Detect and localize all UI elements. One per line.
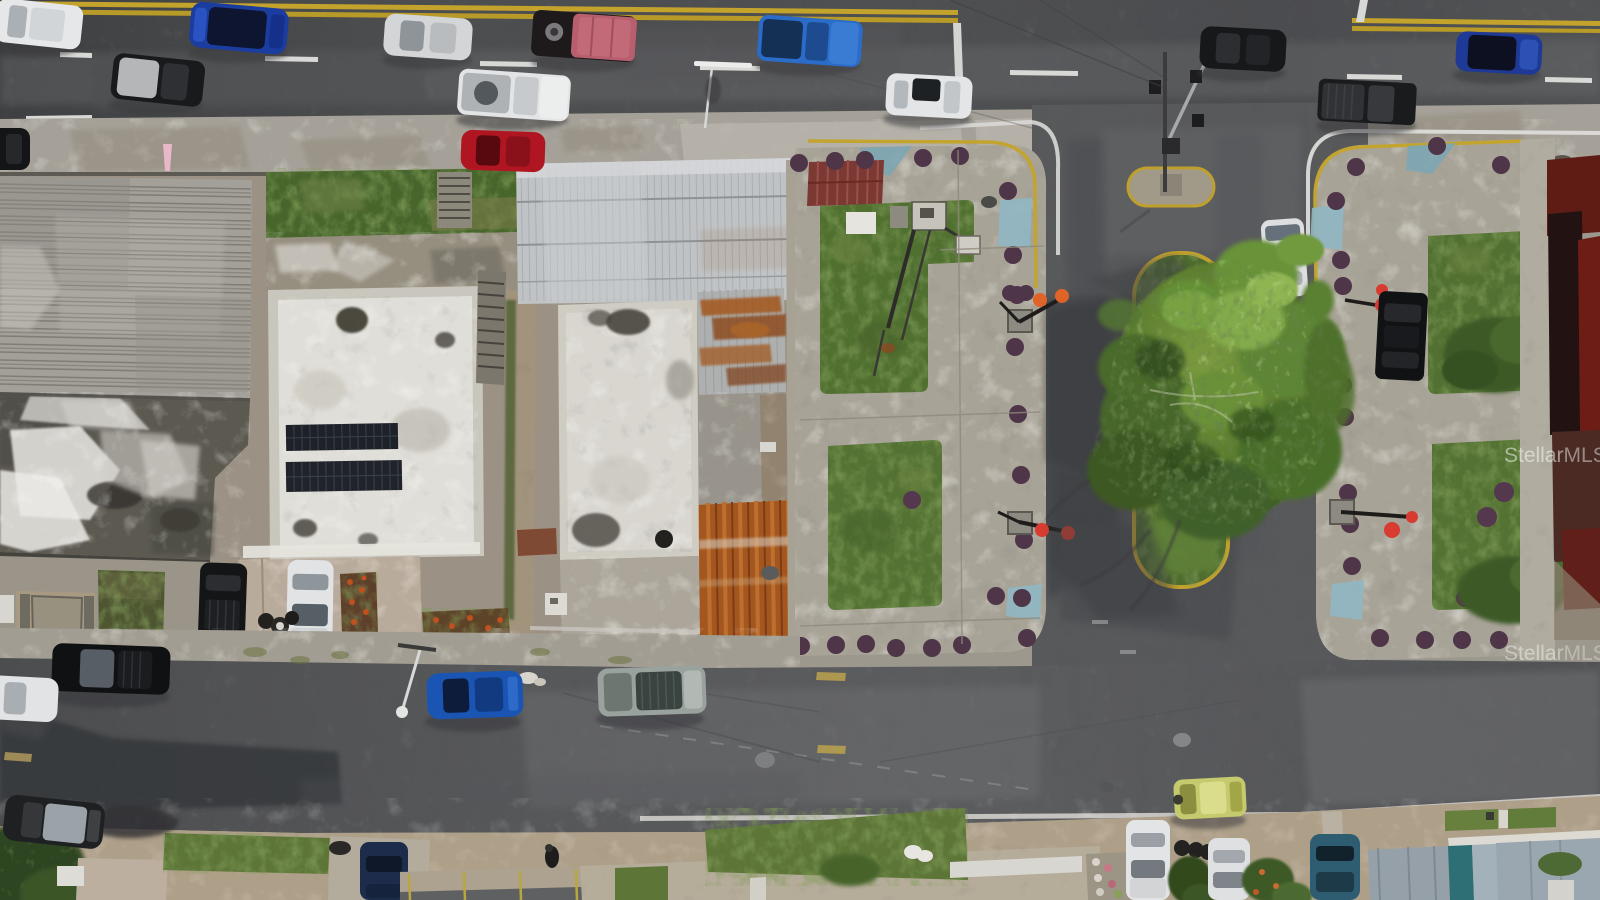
svg-text:StellarMLS: StellarMLS <box>1504 642 1600 665</box>
svg-text:StellarMLS: StellarMLS <box>1504 444 1600 467</box>
